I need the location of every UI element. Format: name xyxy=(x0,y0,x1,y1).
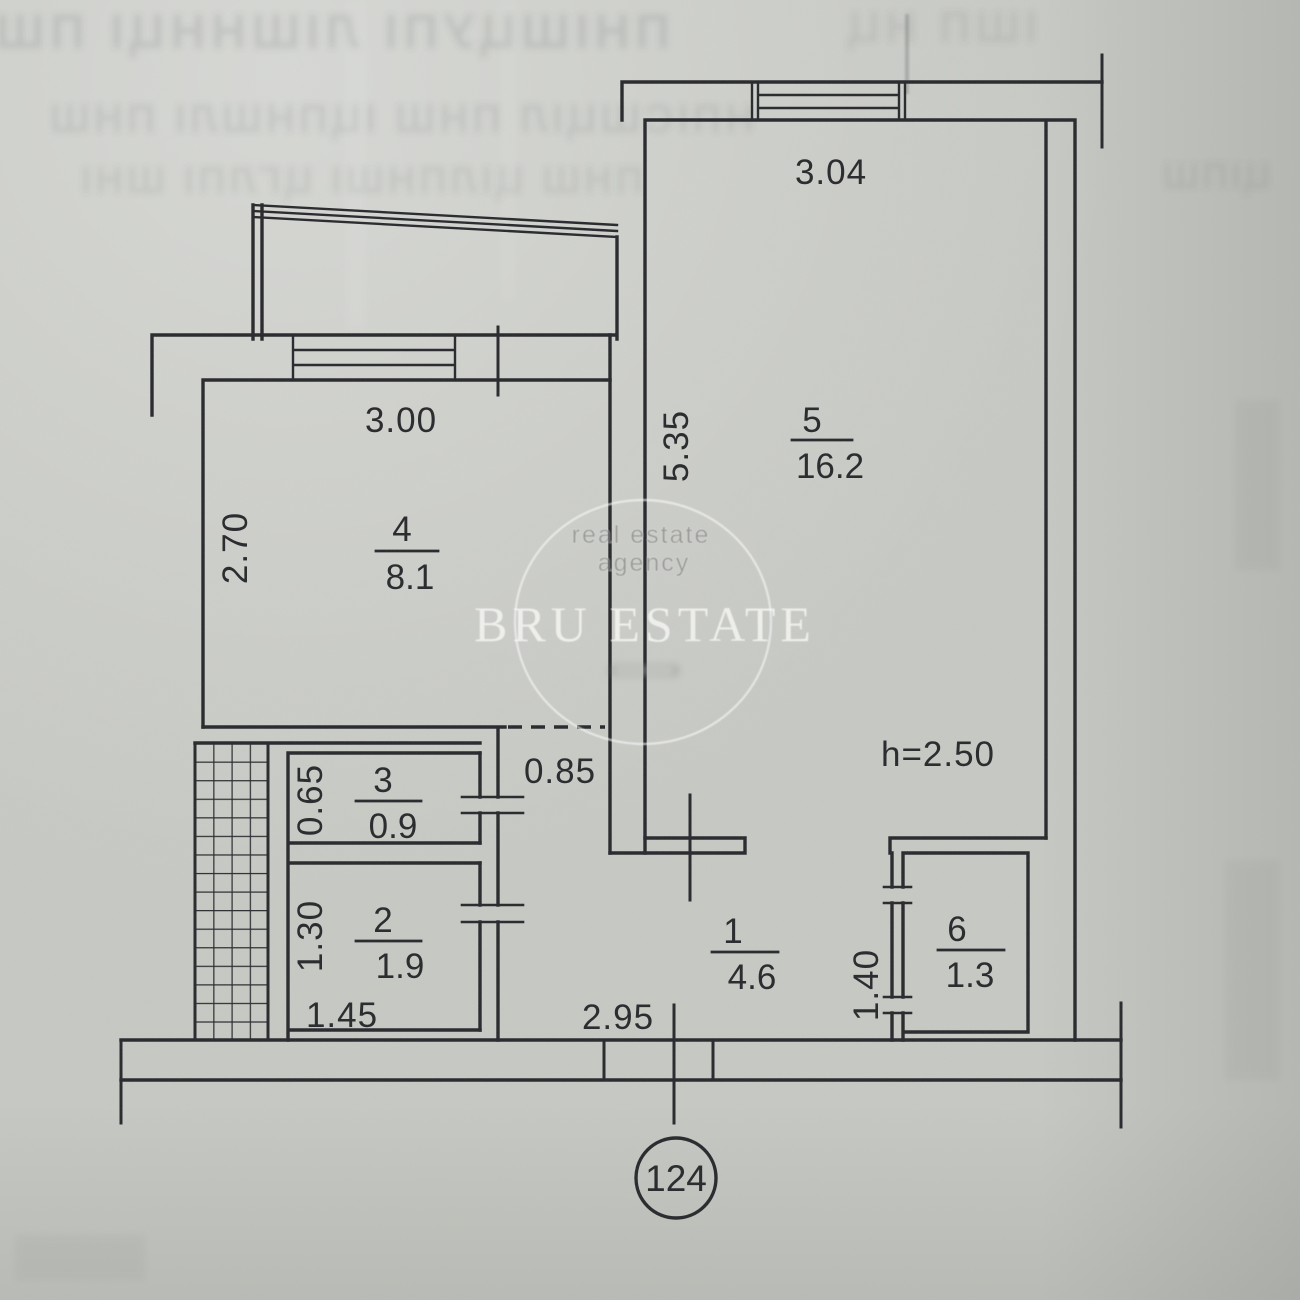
paper-grain-overlay xyxy=(0,0,1300,1300)
floor-plan-svg: ПНІШЦУПІ ЛІШННЦІ ПШ ІШП НЦ НПІСШЦІЛ ПНШ … xyxy=(0,0,1300,1300)
floor-plan-photo: ПНІШЦУПІ ЛІШННЦІ ПШ ІШП НЦ НПІСШЦІЛ ПНШ … xyxy=(0,0,1300,1300)
